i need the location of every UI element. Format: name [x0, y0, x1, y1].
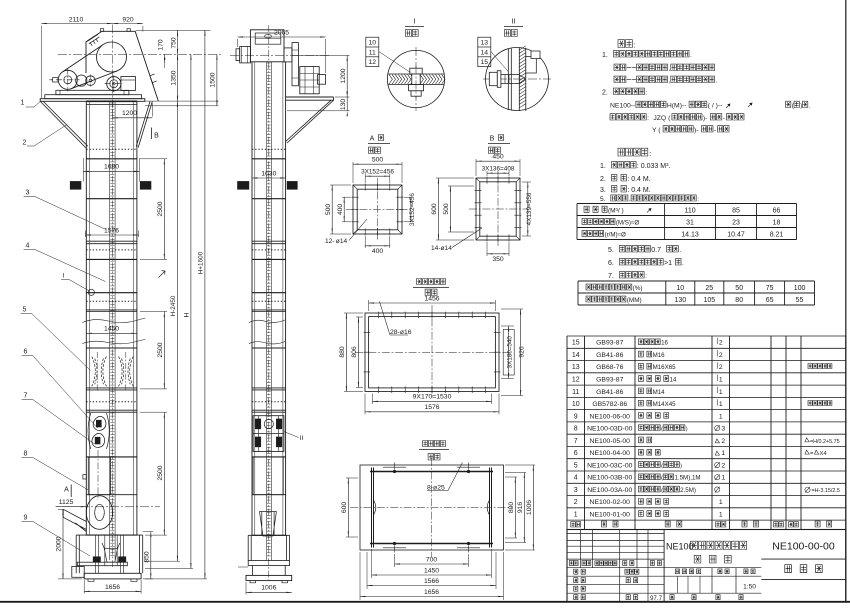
svg-text:: 0.4 M.: : 0.4 M. — [627, 176, 650, 183]
svg-text:NE100-02-00: NE100-02-00 — [590, 499, 631, 506]
svg-text:350: 350 — [492, 256, 504, 263]
svg-text:2: 2 — [574, 499, 578, 506]
svg-text:2.5M): 2.5M) — [680, 487, 696, 494]
svg-text:1576: 1576 — [424, 404, 439, 411]
svg-text:.: . — [716, 78, 718, 85]
svg-text:4: 4 — [26, 242, 30, 249]
svg-text:13: 13 — [572, 364, 580, 371]
svg-text:=H-3.15/2.5: =H-3.15/2.5 — [812, 488, 840, 494]
svg-text:15: 15 — [481, 59, 489, 66]
svg-text:Y (: Y ( — [652, 127, 661, 134]
svg-text:55: 55 — [796, 297, 804, 304]
svg-text:1: 1 — [21, 100, 25, 107]
svg-text:600: 600 — [341, 502, 348, 514]
svg-text:2500: 2500 — [157, 342, 164, 357]
svg-text:NE100-06-00: NE100-06-00 — [590, 413, 631, 420]
svg-text:,: , — [669, 78, 671, 85]
svg-text:130: 130 — [340, 99, 347, 111]
svg-text:1200: 1200 — [122, 110, 137, 117]
svg-text:M14: M14 — [653, 389, 666, 396]
svg-text:11: 11 — [369, 49, 376, 56]
svg-text:0.7: 0.7 — [651, 247, 661, 254]
svg-text:11: 11 — [572, 389, 579, 396]
svg-text:1: 1 — [719, 376, 723, 383]
svg-text:GB68-76: GB68-76 — [596, 364, 623, 371]
svg-text:7: 7 — [574, 438, 578, 445]
svg-text:6.: 6. — [608, 260, 614, 267]
svg-text:>1: >1 — [664, 260, 672, 267]
svg-text:GB5782-86: GB5782-86 — [592, 401, 627, 408]
svg-text:400: 400 — [372, 248, 384, 255]
svg-text:1680: 1680 — [104, 164, 119, 171]
svg-text:: 0.4 M.: : 0.4 M. — [627, 187, 650, 194]
svg-text:9: 9 — [24, 514, 28, 521]
svg-text:1656: 1656 — [105, 584, 120, 591]
svg-text:6: 6 — [24, 348, 28, 355]
svg-text:9X170=1530: 9X170=1530 — [413, 394, 452, 401]
svg-text:1656: 1656 — [424, 589, 439, 596]
svg-text:II: II — [511, 17, 515, 26]
svg-text:2.: 2. — [602, 90, 608, 97]
svg-text:8.21: 8.21 — [770, 231, 784, 238]
svg-text:1576: 1576 — [104, 227, 119, 234]
svg-text:4: 4 — [574, 475, 578, 482]
svg-text:880: 880 — [339, 346, 346, 358]
svg-text:1500: 1500 — [210, 72, 217, 87]
svg-text:(: ( — [661, 463, 663, 469]
svg-text:500: 500 — [443, 203, 450, 215]
svg-text:M14X45: M14X45 — [653, 401, 677, 408]
svg-text:3.: 3. — [600, 187, 606, 194]
svg-text:80: 80 — [735, 297, 743, 304]
svg-text:(r/M)≈Ø: (r/M)≈Ø — [605, 231, 626, 238]
svg-text:170: 170 — [157, 39, 164, 51]
svg-text:(MM): (MM) — [627, 297, 642, 304]
svg-text:GB41-86: GB41-86 — [596, 389, 623, 396]
svg-text:2500: 2500 — [157, 201, 164, 216]
svg-text:M16: M16 — [653, 352, 666, 359]
svg-text:1450: 1450 — [104, 326, 119, 333]
svg-text:2: 2 — [719, 364, 723, 371]
svg-text:H(M)--: H(M)-- — [667, 103, 687, 110]
svg-text:: 0.033 M³.: : 0.033 M³. — [637, 163, 671, 170]
svg-text:,: , — [669, 66, 671, 73]
svg-text:25: 25 — [705, 285, 713, 292]
svg-text:3: 3 — [574, 487, 578, 494]
svg-text:1200: 1200 — [340, 68, 347, 83]
svg-text:31: 31 — [686, 219, 694, 226]
svg-text:GB93-87: GB93-87 — [596, 376, 623, 383]
svg-text:14: 14 — [572, 352, 580, 359]
svg-text:14: 14 — [669, 376, 676, 383]
svg-text:=H/0.2+5.75: =H/0.2+5.75 — [810, 439, 840, 445]
svg-text:12-: 12- — [325, 238, 335, 245]
svg-text:NE100--: NE100-- — [610, 103, 635, 110]
svg-text:926: 926 — [519, 346, 526, 358]
svg-text:1: 1 — [719, 389, 723, 396]
svg-text:1: 1 — [719, 499, 723, 506]
svg-text:)-: )- — [694, 127, 699, 134]
svg-text:NE100-03A-00: NE100-03A-00 — [587, 487, 632, 494]
svg-text:6: 6 — [574, 450, 578, 457]
svg-text:14-ø14: 14-ø14 — [431, 245, 452, 252]
svg-text:2: 2 — [23, 140, 27, 147]
svg-text:1: 1 — [719, 401, 723, 408]
svg-text:NE100-03D-00: NE100-03D-00 — [587, 426, 633, 433]
svg-text:1: 1 — [719, 413, 723, 420]
svg-text:1.5M),1M: 1.5M),1M — [674, 475, 700, 482]
svg-text:1030: 1030 — [261, 170, 276, 177]
svg-text:14.13: 14.13 — [681, 231, 699, 238]
svg-text:GB93-87: GB93-87 — [596, 340, 623, 347]
svg-text:.: . — [682, 260, 684, 267]
svg-text:10: 10 — [572, 401, 580, 408]
svg-text:JZQ (: JZQ ( — [653, 115, 671, 122]
svg-text:130: 130 — [674, 297, 686, 304]
svg-text:2: 2 — [721, 438, 725, 445]
svg-text:3: 3 — [26, 189, 30, 196]
svg-text:10: 10 — [676, 285, 684, 292]
svg-text::: : — [647, 115, 649, 122]
svg-text:500: 500 — [372, 157, 384, 164]
svg-text:9: 9 — [574, 413, 578, 420]
svg-text:NE100-00-00: NE100-00-00 — [772, 541, 835, 553]
svg-text:): ) — [686, 427, 688, 433]
svg-text:-: - — [723, 115, 725, 122]
svg-text:14: 14 — [481, 49, 489, 56]
svg-text:1: 1 — [719, 511, 723, 518]
svg-text:-: - — [714, 127, 716, 134]
svg-text:1: 1 — [574, 511, 578, 518]
svg-text:85: 85 — [732, 207, 740, 214]
svg-text:NE100-05-00: NE100-05-00 — [590, 438, 631, 445]
svg-text:2065: 2065 — [274, 29, 289, 36]
svg-text:1350: 1350 — [170, 70, 177, 85]
svg-text:(: ( — [661, 427, 663, 433]
svg-text:12: 12 — [369, 59, 377, 66]
svg-text:18: 18 — [773, 219, 781, 226]
svg-text:1006: 1006 — [261, 585, 276, 592]
svg-text:3X152=456: 3X152=456 — [361, 169, 394, 176]
svg-text:13: 13 — [481, 40, 489, 47]
svg-text:1:50: 1:50 — [743, 584, 756, 591]
svg-text:920: 920 — [122, 16, 134, 23]
svg-text:5: 5 — [574, 462, 578, 469]
svg-text:3X152=456: 3X152=456 — [409, 193, 416, 226]
svg-text:12: 12 — [572, 376, 580, 383]
svg-text:M16X65: M16X65 — [653, 364, 677, 371]
svg-text:8: 8 — [574, 426, 578, 433]
svg-text:1.: 1. — [602, 52, 608, 59]
svg-text:.: . — [809, 103, 811, 110]
svg-text:916: 916 — [517, 502, 524, 514]
svg-text:700: 700 — [426, 556, 438, 563]
svg-text:X4: X4 — [820, 451, 828, 457]
svg-text:I: I — [63, 273, 65, 280]
svg-text:500: 500 — [325, 204, 332, 216]
svg-text:1566: 1566 — [424, 578, 439, 585]
svg-text:1.: 1. — [600, 163, 606, 170]
svg-text:H-2450: H-2450 — [170, 295, 177, 316]
svg-text:GB41-86: GB41-86 — [596, 352, 623, 359]
svg-text:16: 16 — [661, 340, 668, 347]
svg-text:NE100-03C-00: NE100-03C-00 — [587, 462, 633, 469]
svg-text:2: 2 — [719, 340, 723, 347]
svg-text:(M/S)≈Ø: (M/S)≈Ø — [616, 219, 640, 226]
svg-text:15: 15 — [572, 340, 580, 347]
svg-text:10.47: 10.47 — [727, 231, 745, 238]
svg-text:II: II — [300, 435, 304, 442]
svg-text:( / )--: ( / )-- — [708, 103, 723, 110]
svg-text:NE100-03B-00: NE100-03B-00 — [587, 475, 632, 482]
svg-text:(: ( — [661, 476, 663, 482]
svg-text::: : — [645, 273, 647, 280]
svg-text:(: ( — [792, 103, 794, 110]
svg-text:A: A — [370, 136, 375, 143]
svg-text:5: 5 — [23, 306, 27, 313]
svg-text:66: 66 — [773, 207, 781, 214]
svg-text:(%): (%) — [633, 285, 643, 292]
svg-text:7.: 7. — [608, 273, 614, 280]
svg-text:1006: 1006 — [526, 500, 533, 515]
svg-text:NE100-04-00: NE100-04-00 — [590, 450, 631, 457]
svg-text:5.: 5. — [600, 196, 606, 203]
svg-text:NE100-01-00: NE100-01-00 — [590, 511, 631, 518]
svg-text:10: 10 — [369, 40, 377, 47]
svg-text:5.: 5. — [608, 247, 614, 254]
svg-text:400: 400 — [337, 204, 344, 216]
svg-text:2: 2 — [719, 352, 723, 359]
svg-text:8: 8 — [24, 450, 28, 457]
svg-text:65: 65 — [766, 297, 774, 304]
svg-text:.: . — [679, 247, 681, 254]
svg-text:H: H — [184, 312, 191, 317]
svg-text:2500: 2500 — [157, 465, 164, 480]
svg-text:600: 600 — [431, 203, 438, 215]
svg-text:B: B — [154, 133, 159, 140]
svg-text:3X180=540: 3X180=540 — [507, 336, 514, 369]
svg-text:1125: 1125 — [59, 499, 74, 506]
svg-text:850: 850 — [144, 551, 151, 563]
svg-text:806: 806 — [351, 346, 358, 358]
svg-text:.: . — [690, 52, 692, 59]
svg-text:(: ( — [661, 488, 663, 494]
svg-text:23: 23 — [732, 219, 740, 226]
svg-text:7: 7 — [24, 392, 28, 399]
svg-text:3: 3 — [721, 426, 725, 433]
svg-text:3X136=408: 3X136=408 — [482, 166, 515, 173]
svg-text:ø14: ø14 — [336, 238, 348, 245]
svg-text::: : — [634, 41, 636, 50]
svg-text:2.: 2. — [600, 176, 606, 183]
svg-text:A: A — [64, 487, 69, 494]
svg-text:50: 50 — [735, 285, 743, 292]
svg-text:): ) — [680, 463, 682, 469]
svg-text:I: I — [413, 17, 415, 26]
svg-text:105: 105 — [703, 297, 715, 304]
svg-text:2000: 2000 — [56, 536, 63, 551]
svg-text:)-: )- — [703, 115, 708, 122]
svg-text:800: 800 — [508, 502, 515, 514]
svg-text:1: 1 — [721, 450, 725, 457]
svg-text:97.7: 97.7 — [650, 595, 663, 602]
svg-text:450: 450 — [492, 154, 504, 161]
svg-text:H+1600: H+1600 — [198, 251, 205, 274]
svg-text:): ) — [800, 103, 802, 110]
svg-text:(M³/ ): (M³/ ) — [608, 207, 624, 214]
svg-text:B: B — [490, 136, 495, 143]
svg-text:1456: 1456 — [424, 296, 439, 303]
svg-text::: : — [649, 149, 651, 158]
svg-text:2110: 2110 — [69, 16, 84, 23]
svg-text:4X139=556: 4X139=556 — [526, 192, 533, 225]
svg-text:110: 110 — [684, 207, 695, 214]
svg-text::: : — [645, 90, 647, 97]
svg-text:1450: 1450 — [424, 567, 439, 574]
svg-text:75: 75 — [766, 285, 774, 292]
svg-text:100: 100 — [794, 285, 806, 292]
svg-text:NE100: NE100 — [666, 542, 694, 552]
svg-text:2: 2 — [721, 462, 725, 469]
svg-text:1: 1 — [721, 475, 725, 482]
svg-text:750: 750 — [170, 37, 177, 49]
